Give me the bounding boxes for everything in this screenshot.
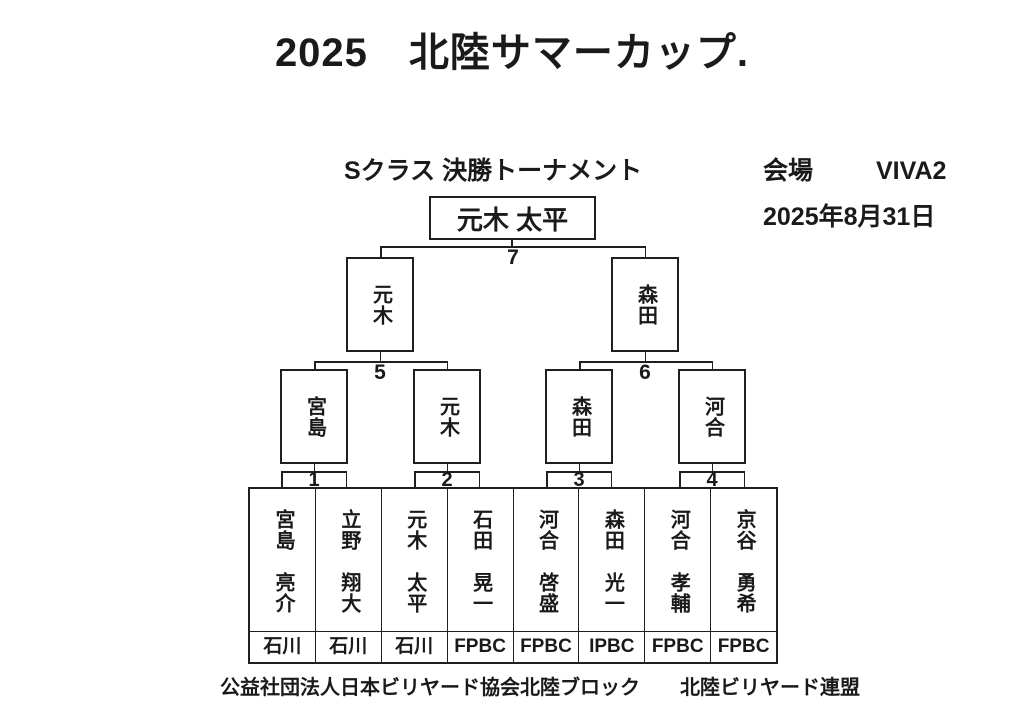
player-name: 元木 太平 [404,509,425,631]
player-column-6: 森田 光一 IPBC [579,489,645,662]
player-club: IPBC [579,631,644,662]
player-club: FPBC [711,631,776,662]
bracket-line [346,471,348,488]
bracket-line [479,471,481,488]
footer-org-federation: 北陸ビリヤード連盟 [680,671,860,700]
class-heading: Sクラス 決勝トーナメント [344,156,642,186]
quarterfinal-box-4: 河合 [678,369,746,464]
player-club: 石川 [316,631,381,662]
player-column-2: 立野 翔大 石川 [316,489,382,662]
player-column-7: 河合 孝輔 FPBC [645,489,711,662]
bracket-line [281,471,283,488]
player-column-4: 石田 晃一 FPBC [448,489,514,662]
player-club: 石川 [382,631,447,662]
player-club: FPBC [645,631,710,662]
event-date: 2025年8月31日 [763,202,935,232]
quarterfinalist-name: 森田 [569,396,590,438]
semifinalist-name: 森田 [635,284,656,326]
quarterfinalist-name: 河合 [702,396,723,438]
footer-org-block: 公益社団法人日本ビリヤード協会北陸ブロック [220,671,640,700]
match-number-6: 6 [625,363,665,383]
bracket-line [546,471,548,488]
bracket-line [314,361,316,369]
bracket-line [579,361,581,369]
venue-label: 会場 [763,156,813,186]
player-club: 石川 [250,631,315,662]
bracket-line [414,471,416,488]
player-name: 京谷 勇希 [733,509,754,631]
player-column-5: 河合 啓盛 FPBC [514,489,580,662]
page-title: 2025 北陸サマーカップ. [0,30,1024,76]
semifinalist-name: 元木 [370,284,391,326]
player-column-8: 京谷 勇希 FPBC [711,489,776,662]
bracket-line [645,246,647,257]
bracket-line [712,361,714,369]
player-name: 河合 孝輔 [667,509,688,631]
tournament-bracket-sheet: 2025 北陸サマーカップ. Sクラス 決勝トーナメント 会場 VIVA2 20… [0,0,1024,723]
player-club: FPBC [448,631,513,662]
champion-box: 元木 太平 [429,196,596,240]
semifinal-box-2: 森田 [611,257,679,352]
bracket-line [611,471,613,488]
bracket-line [380,246,382,257]
player-name: 宮島 亮介 [272,509,293,631]
champion-name: 元木 太平 [457,200,568,237]
player-name: 石田 晃一 [470,509,491,631]
player-column-3: 元木 太平 石川 [382,489,448,662]
match-number-5: 5 [360,363,400,383]
quarterfinal-box-1: 宮島 [280,369,348,464]
quarterfinal-box-2: 元木 [413,369,481,464]
players-table: 宮島 亮介 石川 立野 翔大 石川 元木 太平 石川 石田 晃一 FPBC 河合… [248,487,778,664]
player-club: FPBC [514,631,579,662]
match-number-7: 7 [493,248,533,268]
semifinal-box-1: 元木 [346,257,414,352]
footer: 公益社団法人日本ビリヤード協会北陸ブロック 北陸ビリヤード連盟 [220,671,860,700]
player-name: 立野 翔大 [338,509,359,631]
player-column-1: 宮島 亮介 石川 [250,489,316,662]
quarterfinal-box-3: 森田 [545,369,613,464]
bracket-line [447,361,449,369]
bracket-line [679,471,681,488]
bracket-line [744,471,746,488]
venue-value: VIVA2 [876,156,946,186]
player-name: 河合 啓盛 [535,509,556,631]
quarterfinalist-name: 元木 [437,396,458,438]
quarterfinalist-name: 宮島 [304,396,325,438]
player-name: 森田 光一 [601,509,622,631]
